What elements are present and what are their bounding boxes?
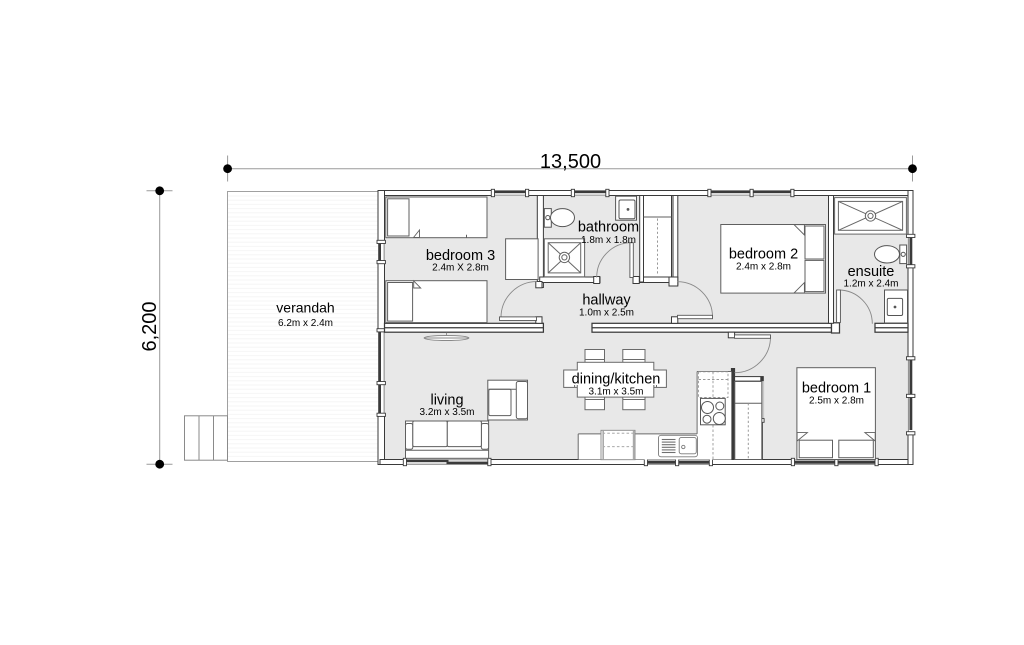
svg-text:3.2m x 3.5m: 3.2m x 3.5m (419, 407, 474, 418)
svg-text:hallway: hallway (582, 293, 631, 309)
svg-text:1.8m x 1.8m: 1.8m x 1.8m (581, 235, 636, 246)
svg-text:bedroom 3: bedroom 3 (426, 248, 495, 264)
svg-text:6,200: 6,200 (139, 301, 161, 351)
svg-text:3.1m x 3.5m: 3.1m x 3.5m (588, 386, 643, 397)
svg-text:6.2m x 2.4m: 6.2m x 2.4m (278, 318, 333, 329)
svg-text:dining/kitchen: dining/kitchen (572, 372, 661, 388)
svg-text:verandah: verandah (276, 300, 334, 316)
svg-text:1.0m x 2.5m: 1.0m x 2.5m (579, 307, 634, 318)
svg-text:bathroom: bathroom (578, 220, 639, 236)
svg-text:2.4m X 2.8m: 2.4m X 2.8m (432, 263, 489, 274)
svg-text:bedroom 1: bedroom 1 (802, 380, 871, 396)
svg-text:2.5m x 2.8m: 2.5m x 2.8m (809, 395, 864, 406)
svg-text:1.2m x 2.4m: 1.2m x 2.4m (843, 278, 898, 289)
svg-text:bedroom 2: bedroom 2 (729, 246, 798, 262)
svg-text:2.4m x 2.8m: 2.4m x 2.8m (736, 261, 791, 272)
svg-text:13,500: 13,500 (540, 151, 601, 173)
